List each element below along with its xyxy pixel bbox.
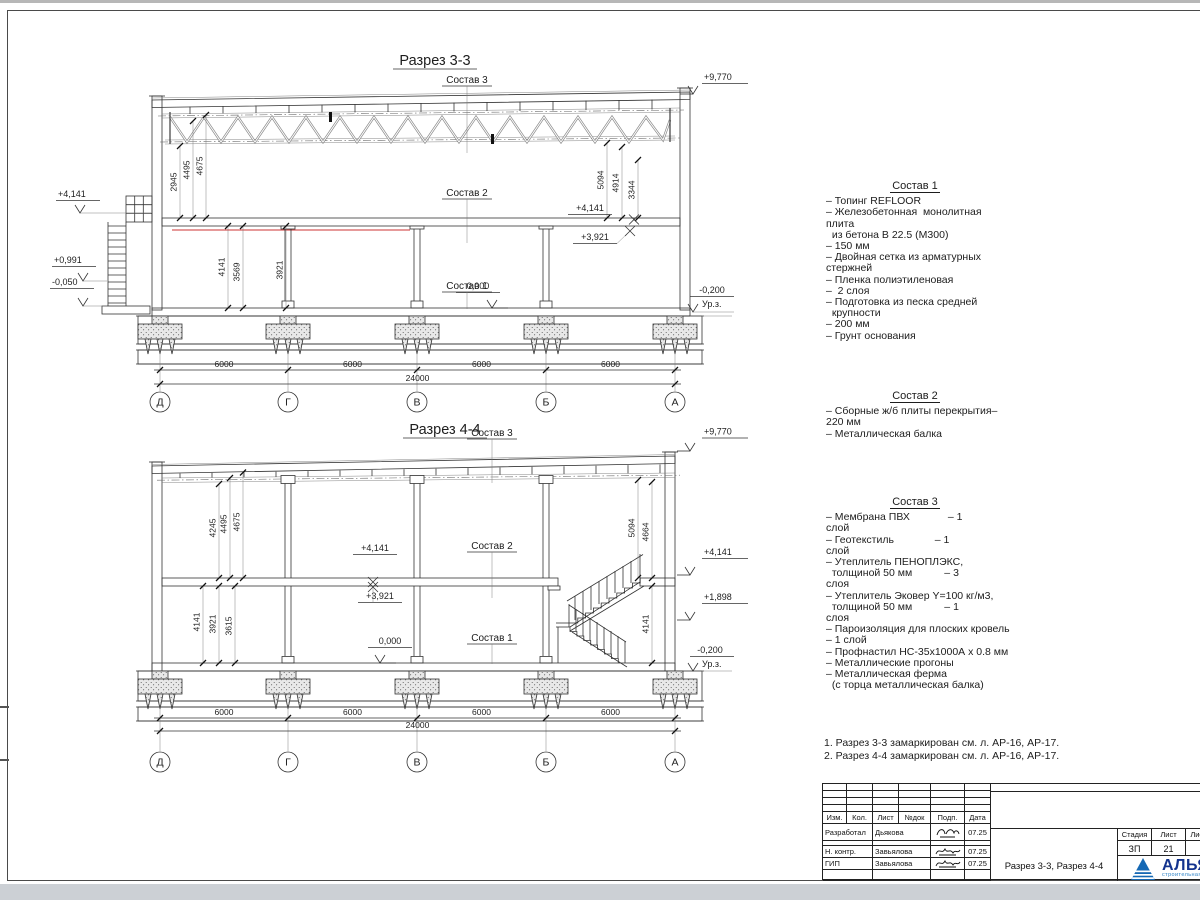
- composition-ref: Состав 2: [446, 188, 488, 199]
- composition-line: (с торца металлическая балка): [826, 680, 1004, 691]
- sheet-notes: 1. Разрез 3-3 замаркирован см. л. АР-16,…: [824, 737, 1059, 763]
- elevation-text: +9,770: [704, 427, 732, 437]
- tb-cell: [965, 805, 990, 812]
- tb-date: 07.25: [965, 846, 990, 858]
- composition-line: толщиной 50 мм – 1: [826, 602, 1004, 613]
- tb-cell: [823, 791, 847, 798]
- tb-cell: [823, 784, 847, 791]
- total-dim: 24000: [406, 373, 430, 383]
- elevation-text: +4,141: [704, 547, 732, 557]
- roof-beam: [157, 465, 680, 484]
- vertical-dimensions: 2945 4495 4675 4141 3569 3921 5094 4914: [169, 112, 642, 311]
- tb-cell: [873, 870, 931, 881]
- span-dim: 6000: [343, 707, 362, 717]
- dim-text: 3569: [232, 262, 242, 281]
- drawing-sheet: Разрез 3-3: [0, 0, 1200, 900]
- grid-label: А: [671, 757, 678, 769]
- dim-text: 4675: [232, 512, 242, 531]
- elevation-text: +0,991: [54, 255, 82, 265]
- composition-ref: Состав 3: [471, 428, 513, 439]
- grid-axes: Д Г В Б А: [150, 752, 685, 772]
- note-line: 2. Разрез 4-4 замаркирован см. л. АР-16,…: [824, 750, 1059, 763]
- composition-line: – Мембрана ПВХ – 1: [826, 512, 1004, 523]
- span-dim: 6000: [215, 359, 234, 369]
- composition-ref: Состав 1: [446, 281, 488, 292]
- stage-header: Стадия: [1118, 828, 1152, 841]
- grid-label: Б: [543, 397, 550, 409]
- composition-3-lines: – Мембрана ПВХ – 1слой– Геотекстиль – 1с…: [826, 512, 1004, 691]
- span-dim: 6000: [472, 359, 491, 369]
- tb-cell: [847, 784, 873, 791]
- grid-axes: Д Г В Б А: [150, 392, 685, 412]
- walls: [149, 452, 678, 671]
- tb-date: 07.25: [965, 824, 990, 841]
- section-4-4-drawing: Разрез 4-4: [40, 420, 780, 785]
- sheets-header: Листов: [1186, 828, 1200, 841]
- tb-cell: [965, 798, 990, 805]
- tb-cell: [931, 784, 965, 791]
- purlin-stubs: [190, 100, 652, 115]
- tb-cell: [899, 805, 931, 812]
- sheet-header: Лист: [1152, 828, 1186, 841]
- composition-3-block: Состав 3 – Мембрана ПВХ – 1слой– Геотекс…: [826, 497, 1004, 691]
- composition-line: – 1 слой: [826, 635, 1004, 646]
- dim-text: 3615: [224, 616, 234, 635]
- elevation-text: -0,200: [699, 285, 725, 295]
- composition-2-block: Состав 2 – Сборные ж/б плиты перекрытия–…: [826, 391, 1004, 440]
- dim-text: 4914: [611, 173, 621, 192]
- tb-role: Н. контр.: [823, 846, 873, 858]
- composition-line: стержней: [826, 263, 1004, 274]
- tb-cell: [931, 870, 965, 881]
- stage-sheet-table: Стадия Лист Листов ЗП 21 2: [1118, 828, 1200, 856]
- composition-line: – Геотекстиль – 1: [826, 535, 1004, 546]
- tb-role: ГИП: [823, 858, 873, 870]
- composition-line: – Металлическая балка: [826, 429, 1004, 440]
- tb-cell: [823, 870, 873, 881]
- ground-level-label: Ур.з.: [702, 659, 721, 669]
- section-title: Разрез 4-4: [409, 422, 480, 438]
- composition-2-lines: – Сборные ж/б плиты перекрытия–220 мм– М…: [826, 406, 1004, 440]
- company-name: АЛЬЯНС: [1162, 859, 1200, 873]
- span-dim: 6000: [343, 359, 362, 369]
- tb-cell: [873, 784, 899, 791]
- section-title: Разрез 3-3: [399, 53, 470, 69]
- composition-1-block: Состав 1 – Топинг REFLOOR– Железобетонна…: [826, 181, 1004, 342]
- tb-date: 07.25: [965, 858, 990, 870]
- tb-signature: [931, 846, 965, 858]
- elevation-text: +4,141: [58, 189, 86, 199]
- tb-cell: [965, 784, 990, 791]
- tb-header: Изм.: [823, 812, 847, 824]
- grid-label: В: [413, 757, 420, 769]
- elevation-text: +1,898: [704, 592, 732, 602]
- tb-role: Разработал: [823, 824, 873, 841]
- tb-cell: [873, 791, 899, 798]
- roof: [152, 455, 675, 474]
- elevation-text: 0,000: [379, 636, 402, 646]
- tb-cell: [823, 798, 847, 805]
- bottom-dimensions: 6000 6000 6000 6000 24000: [154, 348, 681, 391]
- tb-cell: [899, 798, 931, 805]
- bottom-dimensions: 6000 6000 6000 6000 24000: [154, 705, 681, 751]
- tb-header: №док: [899, 812, 931, 824]
- ground-floor-slab: [102, 306, 690, 316]
- dim-text: 4141: [192, 612, 202, 631]
- dim-text: 4664: [641, 522, 651, 541]
- composition-ref: Состав 2: [471, 541, 513, 552]
- composition-line: – Железобетонная монолитная: [826, 207, 1004, 218]
- columns-ground-floor: [281, 226, 553, 308]
- note-line: 1. Разрез 3-3 замаркирован см. л. АР-16,…: [824, 737, 1059, 750]
- tb-name: Дьякова: [873, 824, 931, 841]
- fold-mark: [0, 759, 9, 761]
- elevation-marks: +9,770 +4,141 +1,898 -0,200 Ур.з. +4,141…: [353, 427, 748, 672]
- elevation-text: +4,141: [361, 543, 389, 553]
- composition-line: толщиной 50 мм – 3: [826, 568, 1004, 579]
- dim-text: 4141: [641, 614, 651, 633]
- tb-header: Подп.: [931, 812, 965, 824]
- dim-text: 5094: [627, 518, 637, 537]
- composition-leaders: Состав 3 Состав 2 Состав 1: [467, 428, 517, 664]
- company-logo-icon: [1130, 857, 1156, 881]
- tb-cell: [847, 791, 873, 798]
- ground-floor-slab: [152, 663, 675, 671]
- fold-mark: [0, 706, 9, 708]
- composition-1-lines: – Топинг REFLOOR– Железобетонная монолит…: [826, 196, 1004, 342]
- elevation-text: +3,921: [366, 591, 394, 601]
- elevation-text: +4,141: [576, 203, 604, 213]
- dim-text: 3921: [275, 260, 285, 279]
- title-block-left-table: Изм. Кол. Лист №док Подп. Дата Разработа…: [823, 784, 991, 881]
- grid-label: А: [671, 397, 678, 409]
- grid-label: Д: [156, 757, 163, 769]
- dim-text: 3344: [627, 180, 637, 199]
- elevation-text: +3,921: [581, 232, 609, 242]
- top-margin-strip: [0, 0, 1200, 3]
- document-title-cell: Разрез 3-3, Разрез 4-4: [991, 828, 1118, 881]
- section-3-3-drawing: Разрез 3-3: [40, 50, 760, 415]
- elevation-text: +9,770: [704, 72, 732, 82]
- composition-line: – Грунт основания: [826, 331, 1004, 342]
- tb-cell: [965, 870, 990, 881]
- bottom-margin-strip: [0, 884, 1200, 900]
- dim-text: 4141: [217, 257, 227, 276]
- elevation-marks: +9,770 +4,141 +0,991 -0,050 +4,141 +3,92…: [50, 72, 748, 312]
- dim-text: 4495: [182, 160, 192, 179]
- tb-cell: [931, 805, 965, 812]
- total-dim: 24000: [406, 720, 430, 730]
- span-dim: 6000: [215, 707, 234, 717]
- tb-cell: [873, 798, 899, 805]
- tb-divider: [991, 791, 1200, 792]
- ground-and-foundations: [136, 316, 732, 364]
- tb-header: Кол.: [847, 812, 873, 824]
- tb-cell: [823, 805, 847, 812]
- company-logo-cell: АЛЬЯНС строительная компания: [1118, 856, 1200, 881]
- composition-line: – 200 мм: [826, 319, 1004, 330]
- tb-cell: [931, 791, 965, 798]
- grid-label: Г: [285, 397, 291, 409]
- tb-cell: [899, 784, 931, 791]
- tb-cell: [931, 798, 965, 805]
- dim-text: 3921: [208, 614, 218, 633]
- dim-text: 4495: [219, 514, 229, 533]
- ground-level-label: Ур.з.: [702, 299, 721, 309]
- span-dim: 6000: [601, 707, 620, 717]
- tb-cell: [847, 798, 873, 805]
- composition-ref: Состав 3: [446, 75, 488, 86]
- tb-header: Лист: [873, 812, 899, 824]
- tb-signature: [931, 858, 965, 870]
- company-subtitle: строительная компания: [1162, 872, 1200, 878]
- composition-heading: Состав 3: [826, 497, 1004, 508]
- dim-text: 4245: [208, 518, 218, 537]
- tb-cell: [847, 805, 873, 812]
- composition-line: слоя: [826, 579, 1004, 590]
- tb-signature: [931, 824, 965, 841]
- dim-text: 2945: [169, 172, 179, 191]
- grid-label: В: [413, 397, 420, 409]
- dim-text: 4675: [195, 156, 205, 175]
- title-block: Изм. Кол. Лист №док Подп. Дата Разработа…: [822, 783, 1200, 880]
- tb-name: Завьялова: [873, 858, 931, 870]
- external-stair: [108, 196, 152, 306]
- elevation-text: -0,200: [697, 645, 723, 655]
- tb-name: Завьялова: [873, 846, 931, 858]
- tb-header: Дата: [965, 812, 990, 824]
- grid-label: Г: [285, 757, 291, 769]
- tb-cell: [899, 791, 931, 798]
- elevation-text: -0,050: [52, 277, 78, 287]
- document-title: Разрез 3-3, Разрез 4-4: [1005, 861, 1104, 872]
- tb-cell: [873, 805, 899, 812]
- sheet-value: 21: [1152, 841, 1186, 856]
- tb-cell: [965, 791, 990, 798]
- vertical-dimensions: 4245 4495 4675 4141 3921 3615 5094 4664: [192, 470, 656, 667]
- composition-line: 220 мм: [826, 417, 1004, 428]
- span-dim: 6000: [472, 707, 491, 717]
- floor-slab-level2: [162, 578, 675, 590]
- dim-text: 5094: [596, 170, 606, 189]
- sheets-value: 2: [1186, 841, 1200, 856]
- composition-line: слой: [826, 523, 1004, 534]
- span-dim: 6000: [601, 359, 620, 369]
- composition-ref: Состав 1: [471, 633, 513, 644]
- grid-label: Д: [156, 397, 163, 409]
- grid-label: Б: [543, 757, 550, 769]
- composition-heading: Состав 2: [826, 391, 1004, 402]
- composition-heading: Состав 1: [826, 181, 1004, 192]
- internal-stair: [556, 554, 644, 667]
- stage-value: ЗП: [1118, 841, 1152, 856]
